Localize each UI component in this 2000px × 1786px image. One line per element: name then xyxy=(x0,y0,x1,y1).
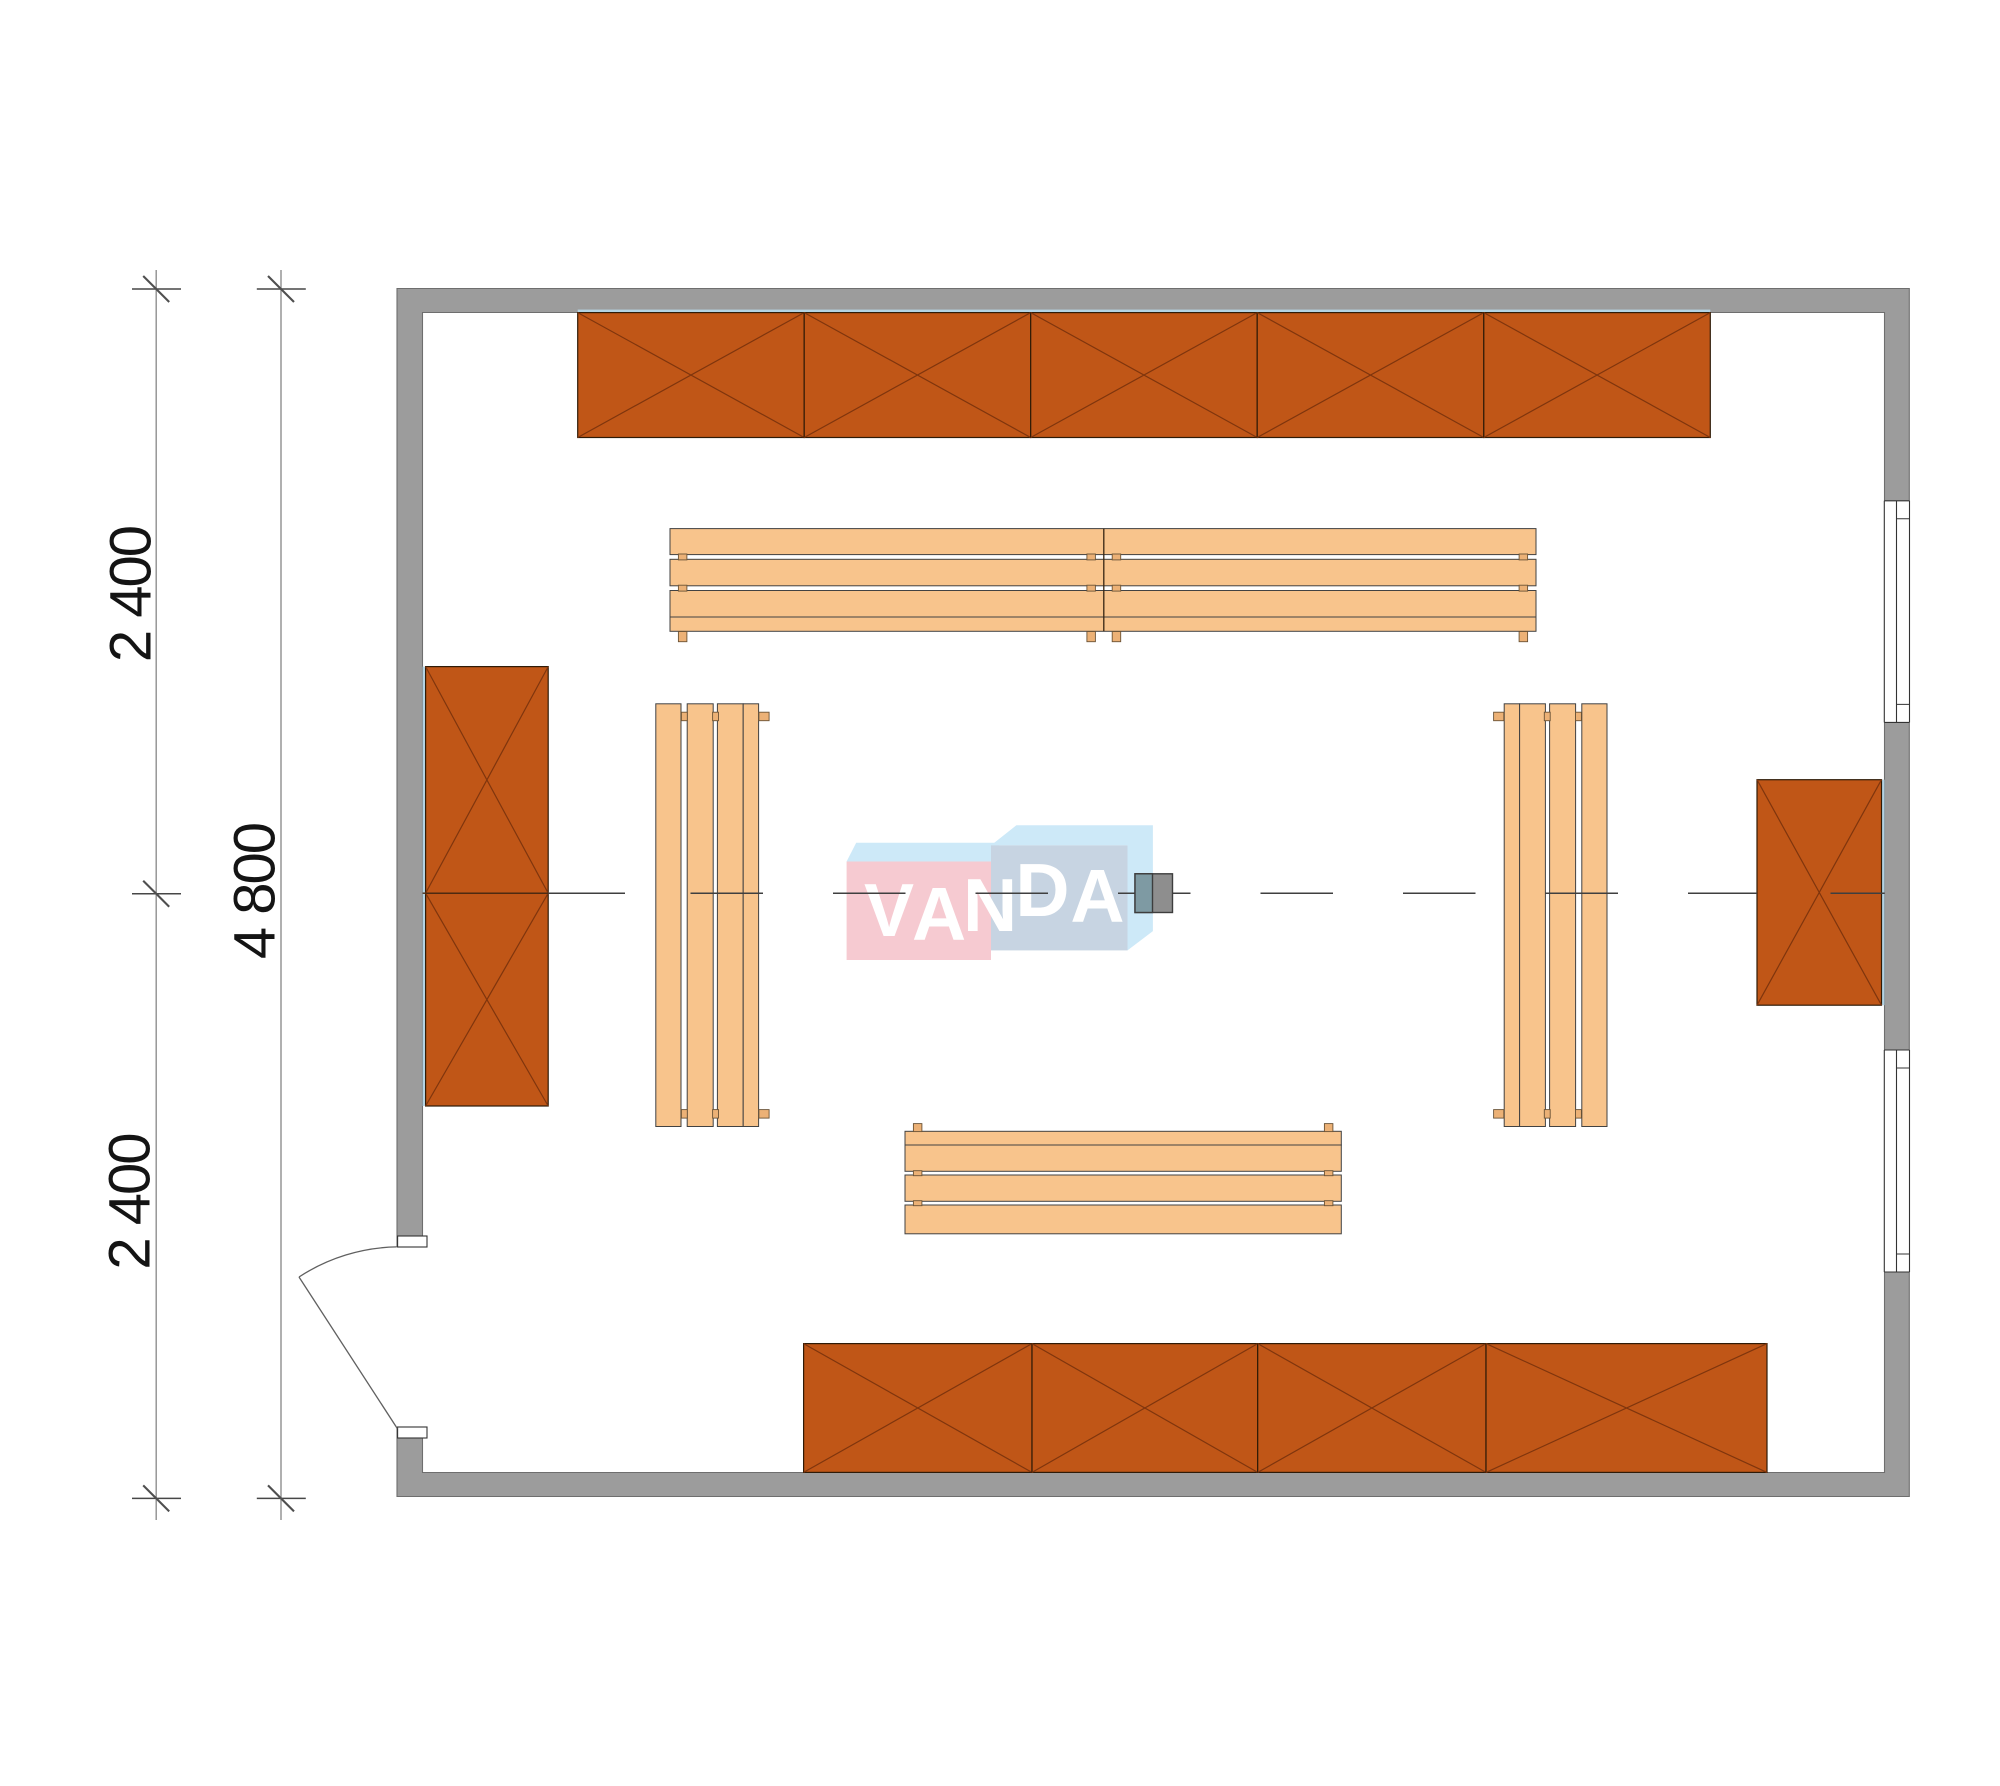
svg-text:D: D xyxy=(1015,848,1069,932)
svg-text:N: N xyxy=(963,863,1017,947)
svg-text:4 800: 4 800 xyxy=(223,824,288,959)
svg-text:2 400: 2 400 xyxy=(99,527,164,662)
svg-text:A: A xyxy=(912,871,966,955)
svg-text:V: V xyxy=(864,868,914,952)
svg-text:2 400: 2 400 xyxy=(98,1134,163,1269)
svg-text:A: A xyxy=(1070,853,1124,937)
